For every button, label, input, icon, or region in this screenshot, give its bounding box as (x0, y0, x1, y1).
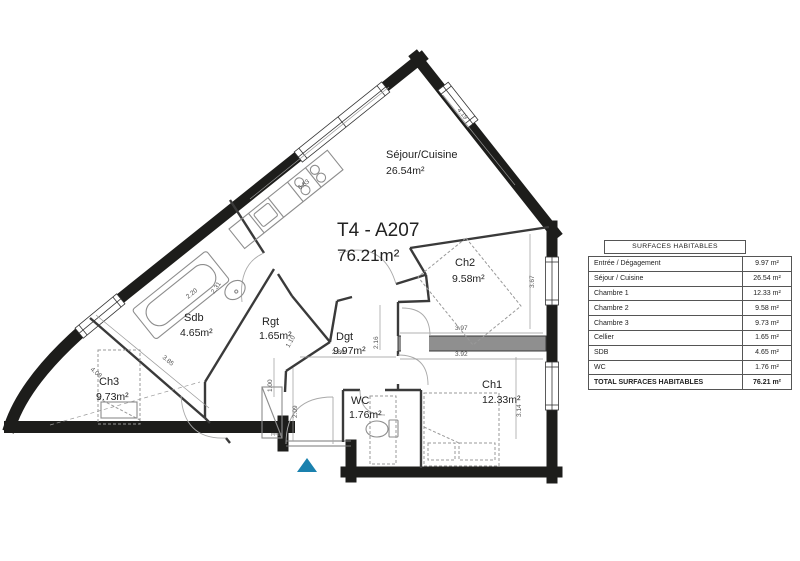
table-row: Chambre 1 12.33 m² (589, 286, 792, 301)
row-label: Séjour / Cuisine (589, 271, 743, 286)
table-row: Chambre 2 9.58 m² (589, 301, 792, 316)
table-row: Séjour / Cuisine 26.54 m² (589, 271, 792, 286)
unit-area: 76.21m² (337, 246, 400, 265)
row-value: 9.58 m² (743, 301, 792, 316)
row-label: Entrée / Dégagement (589, 257, 743, 272)
dim-683: 6.83 (297, 178, 312, 192)
room-area-ch1: 12.33m² (482, 394, 521, 406)
table-row: Entrée / Dégagement 9.97 m² (589, 257, 792, 272)
hob-icon (293, 164, 328, 197)
toilet-icon (366, 420, 398, 437)
row-value: 1.65 m² (743, 330, 792, 345)
washbasin-icon (221, 276, 249, 303)
room-label-ch2: Ch2 (455, 257, 475, 269)
row-value: 12.33 m² (743, 286, 792, 301)
room-label-dgt: Dgt (336, 331, 353, 343)
room-area-sdb: 4.65m² (180, 327, 213, 339)
room-label-ch1: Ch1 (482, 379, 502, 391)
door-swings (181, 250, 430, 444)
floorplan-page: 6.83 4.19 3.67 3.14 3.97 3.92 2.86 2.16 … (0, 0, 800, 561)
row-label: Chambre 1 (589, 286, 743, 301)
bed-ch2 (418, 238, 521, 345)
room-area-rgt: 1.65m² (259, 330, 292, 342)
dim-397: 3.97 (455, 325, 468, 332)
row-label: SDB (589, 345, 743, 360)
room-area-dgt: 9.97m² (333, 345, 366, 357)
row-label: Chambre 3 (589, 316, 743, 331)
entrance-marker (297, 458, 317, 472)
total-value: 76.21 m² (743, 375, 792, 390)
room-label-wc: WC (351, 395, 369, 407)
row-label: WC (589, 360, 743, 375)
windows (75, 82, 558, 410)
room-area-ch2: 9.58m² (452, 273, 485, 285)
row-label: Chambre 2 (589, 301, 743, 316)
chambre1-door-arc (398, 355, 428, 385)
row-value: 4.65 m² (743, 345, 792, 360)
table-total-row: TOTAL SURFACES HABITABLES 76.21 m² (589, 375, 792, 390)
unit-title: T4 - A207 (337, 220, 419, 241)
room-label-rgt: Rgt (262, 316, 279, 328)
row-value: 26.54 m² (743, 271, 792, 286)
dim-209: 2.09 (292, 405, 299, 418)
dim-367: 3.67 (529, 275, 536, 288)
row-value: 1.76 m² (743, 360, 792, 375)
wardrobe-ch1 (370, 396, 396, 464)
row-value: 9.73 m² (743, 316, 792, 331)
dim-392: 3.92 (455, 351, 468, 358)
dim-100: 1.00 (267, 379, 274, 392)
row-value: 9.97 m² (743, 257, 792, 272)
table-row: SDB 4.65 m² (589, 345, 792, 360)
table-row: Chambre 3 9.73 m² (589, 316, 792, 331)
window-icon (294, 82, 390, 162)
room-area-wc: 1.76m² (349, 409, 382, 421)
table-row: Cellier 1.65 m² (589, 330, 792, 345)
window-icon (546, 257, 559, 305)
surfaces-table-title: SURFACES HABITABLES (604, 240, 746, 254)
chambre2-door-arc (402, 308, 430, 336)
room-label-sejour: Séjour/Cuisine (386, 149, 458, 161)
room-area-ch3: 9.73m² (96, 391, 129, 403)
table-row: WC 1.76 m² (589, 360, 792, 375)
window-icon (546, 362, 559, 410)
total-label: TOTAL SURFACES HABITABLES (589, 375, 743, 390)
row-label: Cellier (589, 330, 743, 345)
entry-door-code: PP93 (271, 432, 283, 437)
room-label-ch3: Ch3 (99, 376, 119, 388)
sdb-door-arc (241, 253, 264, 302)
chambre2-door-gap (401, 334, 429, 353)
surfaces-table: SURFACES HABITABLES Entrée / Dégagement … (588, 240, 792, 390)
window-icon (438, 82, 478, 128)
dim-385: 3.85 (161, 354, 175, 368)
window-icon (75, 294, 125, 338)
room-area-sejour: 26.54m² (386, 165, 425, 177)
room-label-sdb: Sdb (184, 312, 204, 324)
dim-216: 2.16 (373, 336, 380, 349)
